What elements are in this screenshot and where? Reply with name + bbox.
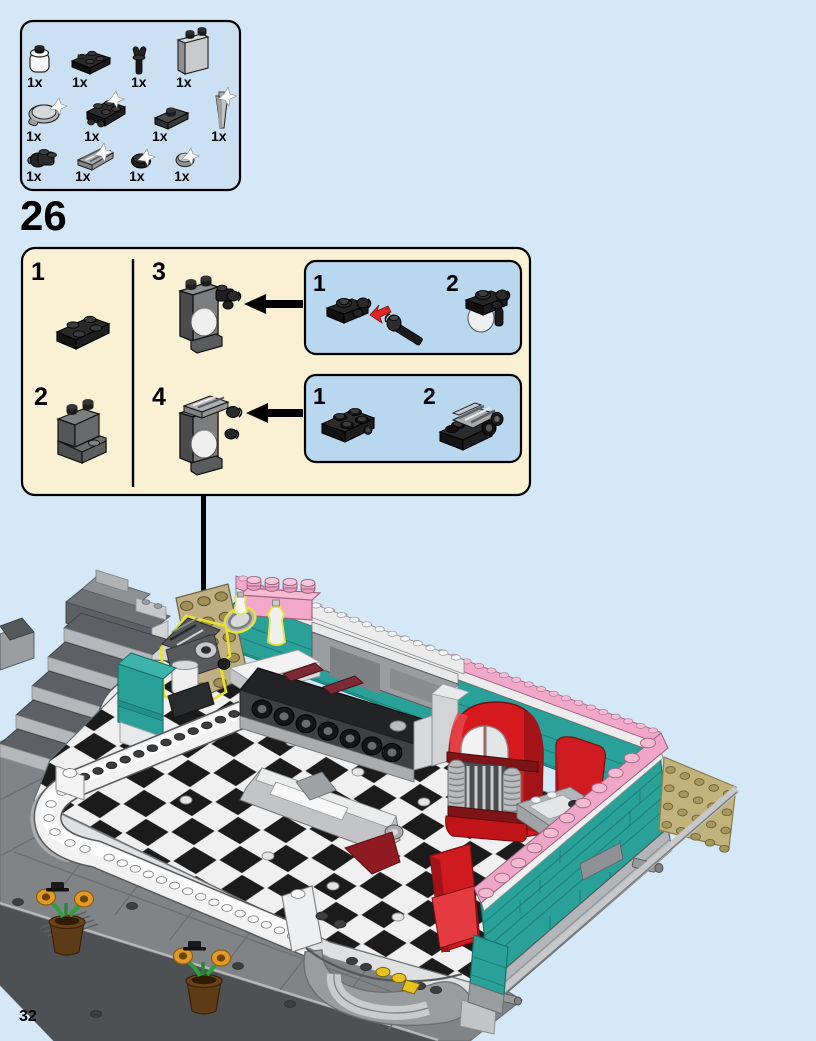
svg-text:3: 3: [152, 258, 166, 286]
svg-text:1x: 1x: [174, 168, 190, 184]
svg-text:1: 1: [313, 383, 326, 409]
svg-text:1x: 1x: [27, 74, 43, 90]
svg-text:1: 1: [31, 258, 45, 286]
svg-text:2: 2: [34, 383, 48, 411]
svg-text:4: 4: [152, 383, 166, 411]
svg-text:2: 2: [423, 383, 436, 409]
svg-text:1x: 1x: [72, 74, 88, 90]
svg-text:32: 32: [19, 1008, 37, 1025]
svg-text:1x: 1x: [26, 168, 42, 184]
svg-text:2: 2: [446, 270, 459, 296]
svg-text:1x: 1x: [84, 128, 100, 144]
svg-text:1x: 1x: [75, 168, 91, 184]
svg-text:1x: 1x: [152, 128, 168, 144]
svg-text:1x: 1x: [131, 74, 147, 90]
svg-text:1x: 1x: [211, 128, 227, 144]
svg-text:1x: 1x: [176, 74, 192, 90]
svg-text:1x: 1x: [129, 168, 145, 184]
svg-text:1x: 1x: [26, 128, 42, 144]
svg-text:26: 26: [20, 192, 67, 239]
svg-text:1: 1: [313, 270, 326, 296]
